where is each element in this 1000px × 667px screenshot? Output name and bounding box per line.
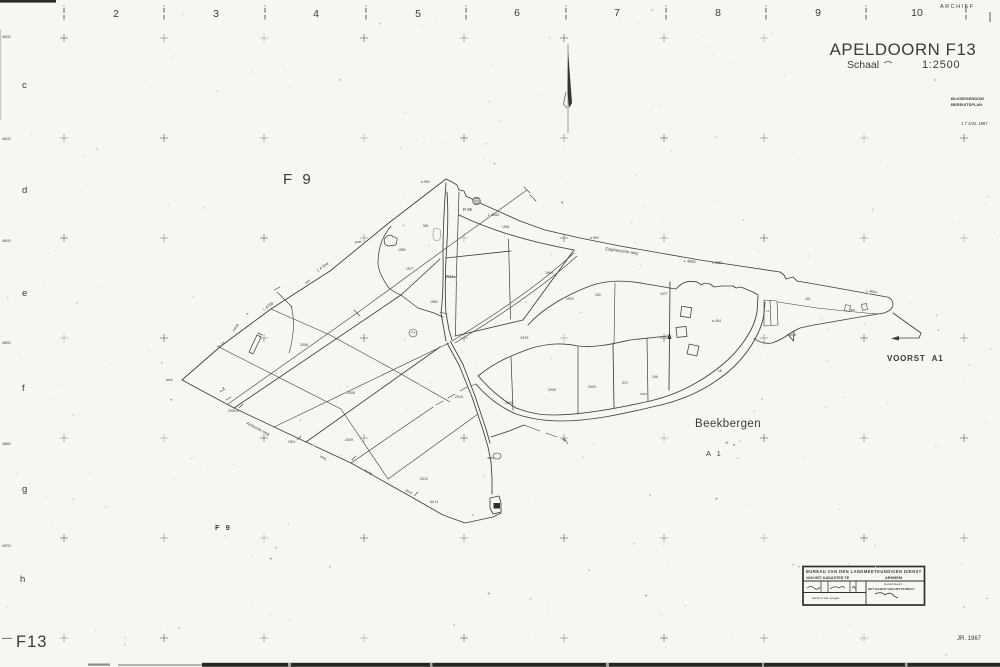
svg-text:400 a: 400 a bbox=[788, 333, 796, 337]
svg-text:1976: 1976 bbox=[520, 336, 528, 340]
svg-text:Beekbergen: Beekbergen bbox=[695, 418, 761, 430]
svg-text:1960: 1960 bbox=[430, 300, 438, 304]
svg-text:Schaal: Schaal bbox=[847, 59, 879, 71]
svg-text:2004: 2004 bbox=[288, 440, 295, 444]
svg-text:APELDOORN F13: APELDOORN F13 bbox=[830, 40, 977, 59]
svg-text:45700: 45700 bbox=[2, 544, 11, 548]
svg-text:46100: 46100 bbox=[2, 137, 11, 141]
svg-text:2000: 2000 bbox=[548, 388, 556, 392]
svg-text:2005: 2005 bbox=[505, 401, 513, 405]
svg-text:400: 400 bbox=[850, 308, 855, 312]
svg-text:8: 8 bbox=[715, 7, 721, 19]
svg-text:F 9: F 9 bbox=[215, 523, 232, 532]
svg-text:BLKSEIGENDOM: BLKSEIGENDOM bbox=[951, 96, 984, 101]
svg-text:L6: L6 bbox=[718, 369, 722, 373]
svg-text:VOORST A1: VOORST A1 bbox=[887, 354, 943, 363]
svg-text:4: 4 bbox=[313, 8, 319, 20]
svg-text:L 4663: L 4663 bbox=[712, 261, 722, 265]
svg-text:g: g bbox=[22, 484, 27, 495]
svg-text:HET HOOFD VAN HET BUREAU: HET HOOFD VAN HET BUREAU bbox=[868, 587, 915, 591]
svg-text:9: 9 bbox=[815, 7, 821, 19]
svg-text:Ab 12: Ab 12 bbox=[430, 500, 439, 504]
svg-text:1959: 1959 bbox=[398, 248, 406, 252]
svg-text:a 900: a 900 bbox=[421, 180, 430, 184]
svg-text:—: — bbox=[2, 633, 12, 644]
svg-text:ARCHIEF: ARCHIEF bbox=[940, 4, 975, 10]
svg-text:2008: 2008 bbox=[347, 391, 355, 395]
svg-text:4800: 4800 bbox=[487, 456, 494, 460]
svg-text:1964: 1964 bbox=[545, 271, 553, 275]
svg-text:3: 3 bbox=[213, 8, 219, 20]
svg-text:f: f bbox=[22, 383, 25, 394]
svg-text:2006: 2006 bbox=[300, 343, 308, 347]
svg-text:BUREAU VAN DEN LANDMEETKUNDIGE: BUREAU VAN DEN LANDMEETKUNDIGEN DIENST bbox=[806, 569, 922, 574]
svg-text:46000: 46000 bbox=[2, 239, 11, 243]
svg-text:poel: poel bbox=[355, 240, 362, 244]
svg-text:ARNHEM: ARNHEM bbox=[885, 575, 902, 580]
svg-text:1977: 1977 bbox=[660, 292, 668, 296]
svg-text:JR. 1967: JR. 1967 bbox=[957, 636, 982, 642]
svg-text:a 900: a 900 bbox=[590, 236, 599, 240]
svg-text:1975: 1975 bbox=[566, 297, 574, 301]
svg-text:c: c bbox=[22, 80, 27, 91]
svg-text:A 1: A 1 bbox=[706, 449, 723, 458]
svg-text:100: 100 bbox=[595, 293, 601, 297]
svg-text:VAN HET KADASTER TE: VAN HET KADASTER TE bbox=[806, 576, 850, 580]
svg-text:F 9: F 9 bbox=[283, 171, 314, 188]
svg-text:d: d bbox=[22, 185, 27, 196]
svg-text:963: 963 bbox=[423, 224, 429, 228]
svg-text:e: e bbox=[22, 288, 27, 299]
svg-text:L 4662: L 4662 bbox=[488, 213, 499, 217]
svg-text:1 7 JAN. 1967: 1 7 JAN. 1967 bbox=[961, 121, 988, 126]
svg-text:45800: 45800 bbox=[2, 442, 11, 446]
svg-text:h: h bbox=[20, 574, 25, 585]
svg-text:Hierbij in tripl. aangeb.: Hierbij in tripl. aangeb. bbox=[812, 596, 840, 600]
svg-text:246: 246 bbox=[652, 375, 658, 379]
svg-text:F13: F13 bbox=[16, 633, 47, 651]
svg-text:am2: am2 bbox=[166, 378, 173, 382]
svg-text:2004 a: 2004 a bbox=[228, 409, 238, 413]
svg-text:46200: 46200 bbox=[2, 35, 11, 39]
svg-text:2009: 2009 bbox=[345, 438, 353, 442]
svg-text:45900: 45900 bbox=[2, 341, 11, 345]
svg-text:6: 6 bbox=[514, 7, 520, 19]
svg-text:1977: 1977 bbox=[406, 267, 414, 271]
svg-text:BEREUITSPLAN: BEREUITSPLAN bbox=[951, 102, 982, 107]
svg-text:10: 10 bbox=[911, 7, 923, 19]
svg-text:R 99: R 99 bbox=[463, 207, 473, 212]
svg-text:2: 2 bbox=[113, 8, 119, 20]
svg-text:5: 5 bbox=[415, 8, 421, 20]
svg-text:2010: 2010 bbox=[455, 395, 463, 399]
svg-text:a 404: a 404 bbox=[712, 319, 721, 323]
svg-text:2004: 2004 bbox=[640, 392, 647, 396]
svg-text:402: 402 bbox=[805, 297, 811, 301]
svg-text:2012: 2012 bbox=[420, 477, 428, 481]
svg-text:7: 7 bbox=[614, 7, 620, 19]
svg-text:372: 372 bbox=[622, 381, 628, 385]
svg-text:L4: L4 bbox=[766, 309, 770, 313]
svg-text:1961: 1961 bbox=[502, 225, 510, 229]
svg-text:2003: 2003 bbox=[588, 385, 596, 389]
svg-text:1:2500: 1:2500 bbox=[922, 59, 960, 71]
svg-text:R53a: R53a bbox=[446, 274, 456, 279]
svg-text:Gecontroleerd: Gecontroleerd bbox=[884, 582, 902, 586]
